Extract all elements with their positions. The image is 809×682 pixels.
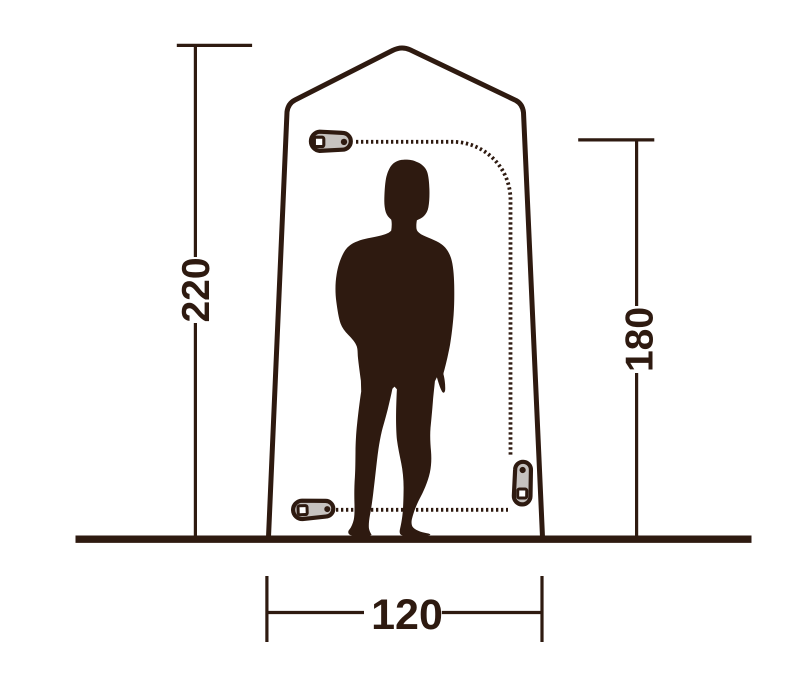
svg-text:180: 180 — [619, 307, 662, 372]
svg-text:120: 120 — [371, 591, 443, 639]
svg-text:220: 220 — [175, 257, 218, 322]
